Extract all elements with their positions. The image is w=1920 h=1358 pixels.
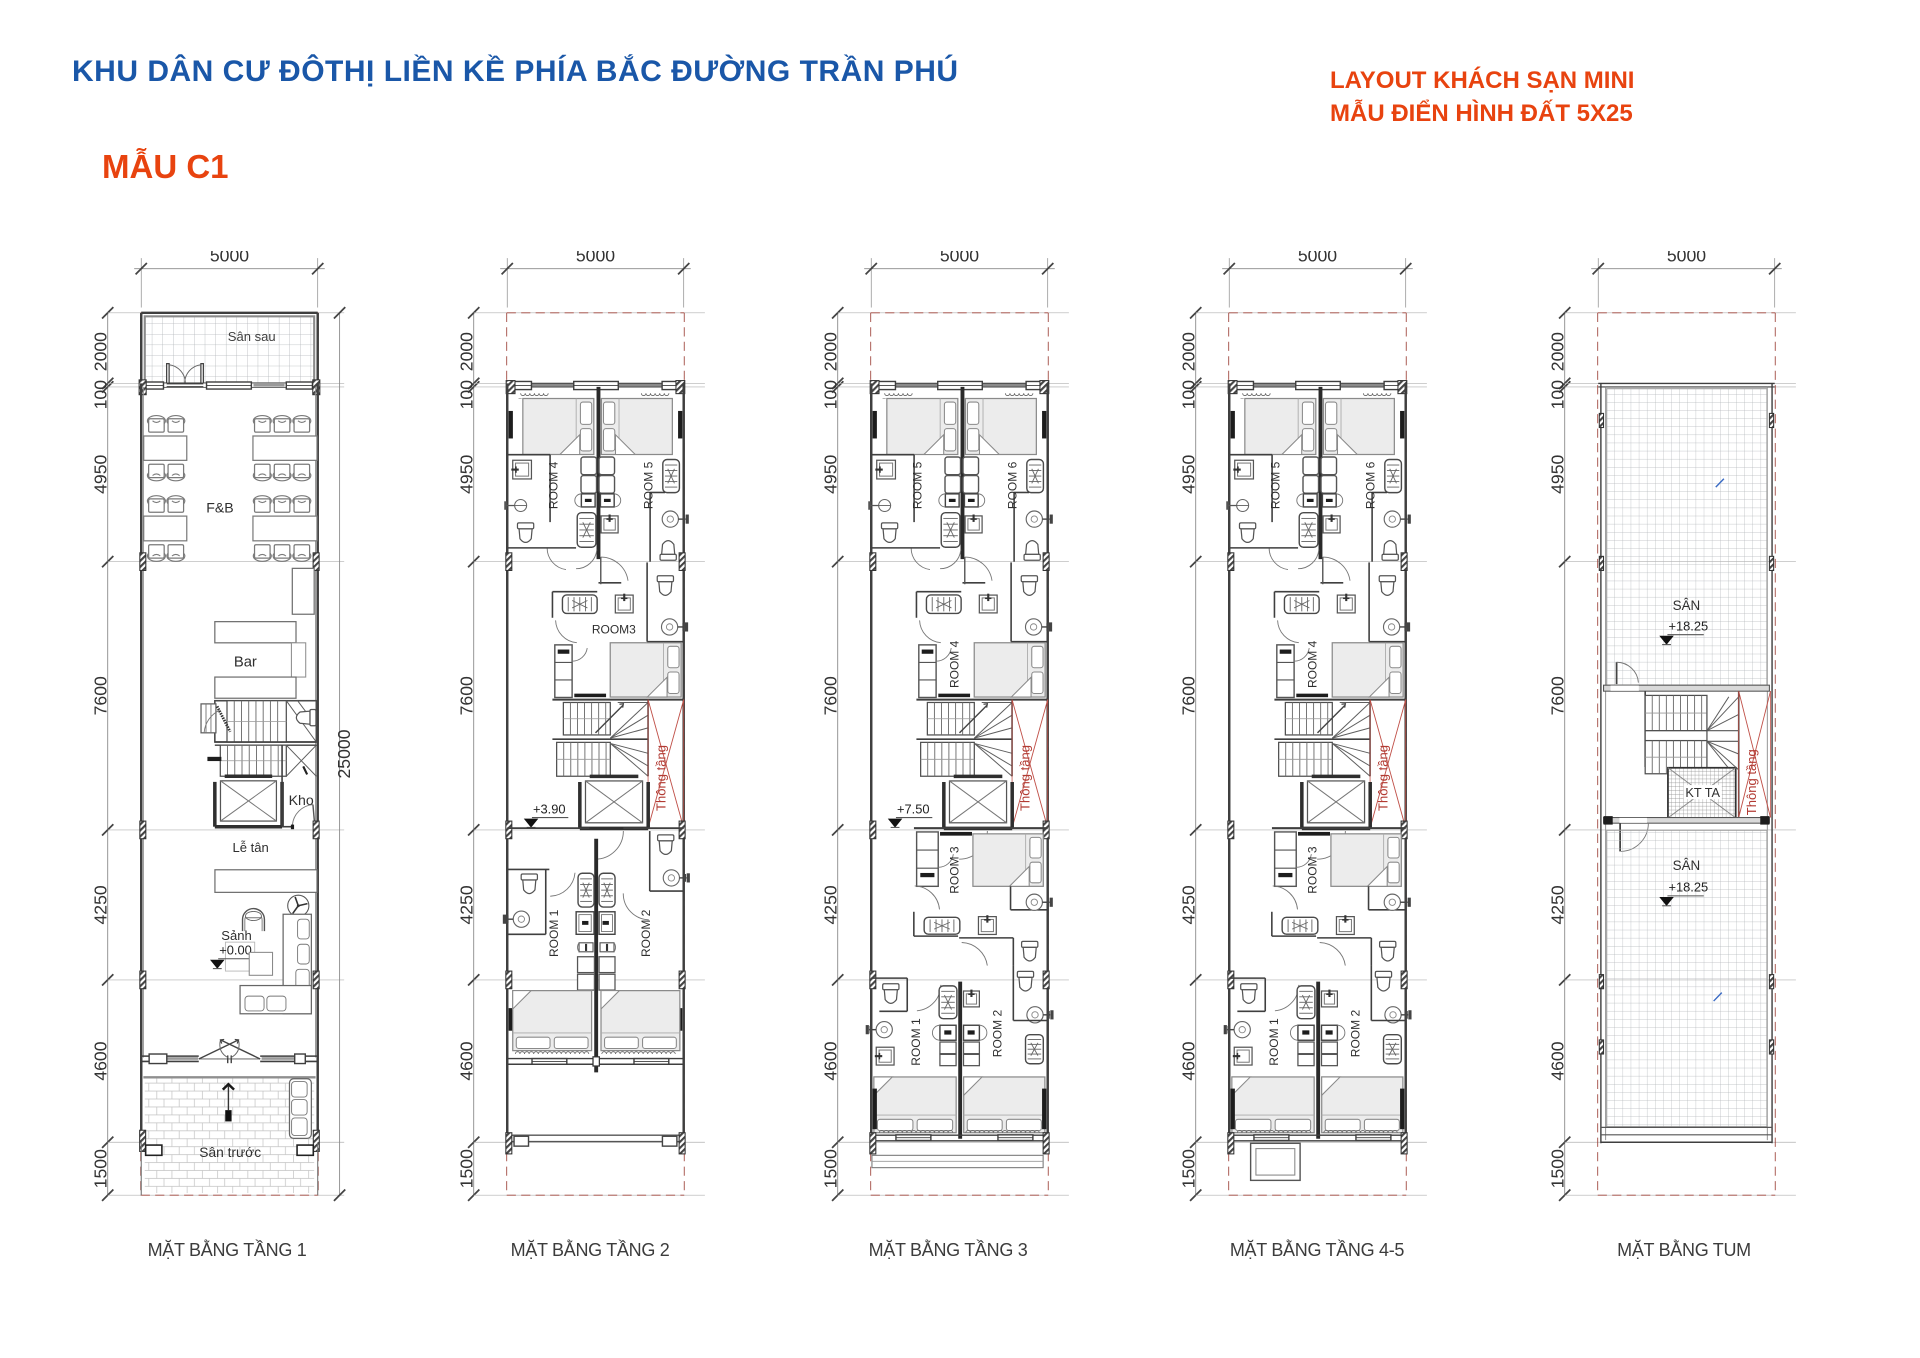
svg-text:1500: 1500 (1547, 1149, 1567, 1188)
svg-text:2000: 2000 (457, 332, 477, 371)
svg-text:ROOM 2: ROOM 2 (639, 909, 653, 957)
svg-text:ROOM 4: ROOM 4 (547, 462, 561, 510)
svg-text:ROOM 5: ROOM 5 (1269, 462, 1283, 510)
svg-text:7600: 7600 (821, 676, 841, 715)
svg-text:ROOM 6: ROOM 6 (1363, 462, 1377, 510)
svg-text:1500: 1500 (91, 1149, 111, 1188)
svg-text:ROOM 1: ROOM 1 (1267, 1018, 1281, 1066)
svg-text:SÂN: SÂN (1672, 858, 1700, 873)
svg-text:ROOM 4: ROOM 4 (1306, 641, 1320, 689)
svg-text:4600: 4600 (1179, 1041, 1199, 1080)
svg-text:100: 100 (457, 380, 477, 410)
svg-text:+3.90: +3.90 (533, 801, 566, 816)
svg-text:Lễ tân: Lễ tân (233, 840, 269, 855)
svg-text:2000: 2000 (821, 332, 841, 371)
svg-text:Sảnh: Sảnh (222, 928, 252, 943)
svg-text:7600: 7600 (457, 676, 477, 715)
svg-text:Thông tầng: Thông tầng (654, 745, 669, 811)
svg-text:4950: 4950 (1179, 455, 1199, 494)
svg-text:4250: 4250 (1547, 885, 1567, 924)
svg-text:+0.00: +0.00 (220, 943, 253, 958)
svg-text:ROOM 6: ROOM 6 (1006, 462, 1020, 510)
svg-text:ROOM 3: ROOM 3 (1306, 846, 1320, 894)
svg-text:25000: 25000 (335, 729, 355, 778)
svg-text:5000: 5000 (210, 251, 249, 266)
svg-text:ROOM 2: ROOM 2 (991, 1010, 1005, 1058)
svg-text:4250: 4250 (457, 885, 477, 924)
svg-text:ROOM 5: ROOM 5 (641, 462, 655, 510)
svg-text:+7.50: +7.50 (897, 801, 930, 816)
svg-text:Bar: Bar (234, 655, 257, 671)
svg-text:Thông tầng: Thông tầng (1376, 745, 1391, 811)
svg-text:ROOM 4: ROOM 4 (948, 641, 962, 689)
svg-text:SÂN: SÂN (1672, 598, 1700, 613)
svg-text:100: 100 (91, 380, 111, 410)
svg-text:4250: 4250 (821, 885, 841, 924)
svg-text:ROOM3: ROOM3 (592, 623, 636, 637)
svg-text:7600: 7600 (1179, 676, 1199, 715)
svg-text:KT TA: KT TA (1685, 786, 1720, 800)
svg-text:F&B: F&B (207, 500, 234, 516)
svg-text:1500: 1500 (1179, 1149, 1199, 1188)
svg-text:7600: 7600 (91, 676, 111, 715)
svg-text:+18.25: +18.25 (1668, 619, 1708, 634)
svg-text:Kho: Kho (289, 792, 314, 808)
svg-text:5000: 5000 (1667, 251, 1706, 266)
svg-text:1500: 1500 (821, 1149, 841, 1188)
svg-text:4250: 4250 (91, 885, 111, 924)
svg-text:4950: 4950 (457, 455, 477, 494)
svg-text:5000: 5000 (940, 251, 979, 266)
svg-text:Sân trước: Sân trước (200, 1145, 262, 1160)
svg-text:2000: 2000 (91, 332, 111, 371)
svg-text:2000: 2000 (1547, 332, 1567, 371)
svg-text:5000: 5000 (1298, 251, 1337, 266)
svg-text:4600: 4600 (821, 1041, 841, 1080)
svg-text:ROOM 5: ROOM 5 (911, 462, 925, 510)
svg-text:Thông tầng: Thông tầng (1018, 745, 1033, 811)
svg-text:4950: 4950 (91, 455, 111, 494)
svg-text:ROOM 1: ROOM 1 (547, 909, 561, 957)
svg-text:5000: 5000 (576, 251, 615, 266)
svg-text:4600: 4600 (91, 1041, 111, 1080)
svg-text:2000: 2000 (1179, 332, 1199, 371)
svg-text:4600: 4600 (457, 1041, 477, 1080)
svg-text:ROOM 2: ROOM 2 (1349, 1010, 1363, 1058)
svg-text:100: 100 (1179, 380, 1199, 410)
svg-text:7600: 7600 (1547, 676, 1567, 715)
svg-text:4250: 4250 (1179, 885, 1199, 924)
svg-text:4600: 4600 (1547, 1041, 1567, 1080)
svg-text:100: 100 (821, 380, 841, 410)
svg-text:ROOM 1: ROOM 1 (909, 1018, 923, 1066)
svg-text:Thông tầng: Thông tầng (1744, 749, 1759, 815)
svg-text:ROOM 3: ROOM 3 (948, 846, 962, 894)
svg-text:100: 100 (1547, 380, 1567, 410)
svg-text:4950: 4950 (1547, 455, 1567, 494)
svg-text:Sân sau: Sân sau (228, 329, 276, 344)
svg-text:1500: 1500 (457, 1149, 477, 1188)
svg-text:4950: 4950 (821, 455, 841, 494)
svg-text:+18.25: +18.25 (1668, 880, 1708, 895)
